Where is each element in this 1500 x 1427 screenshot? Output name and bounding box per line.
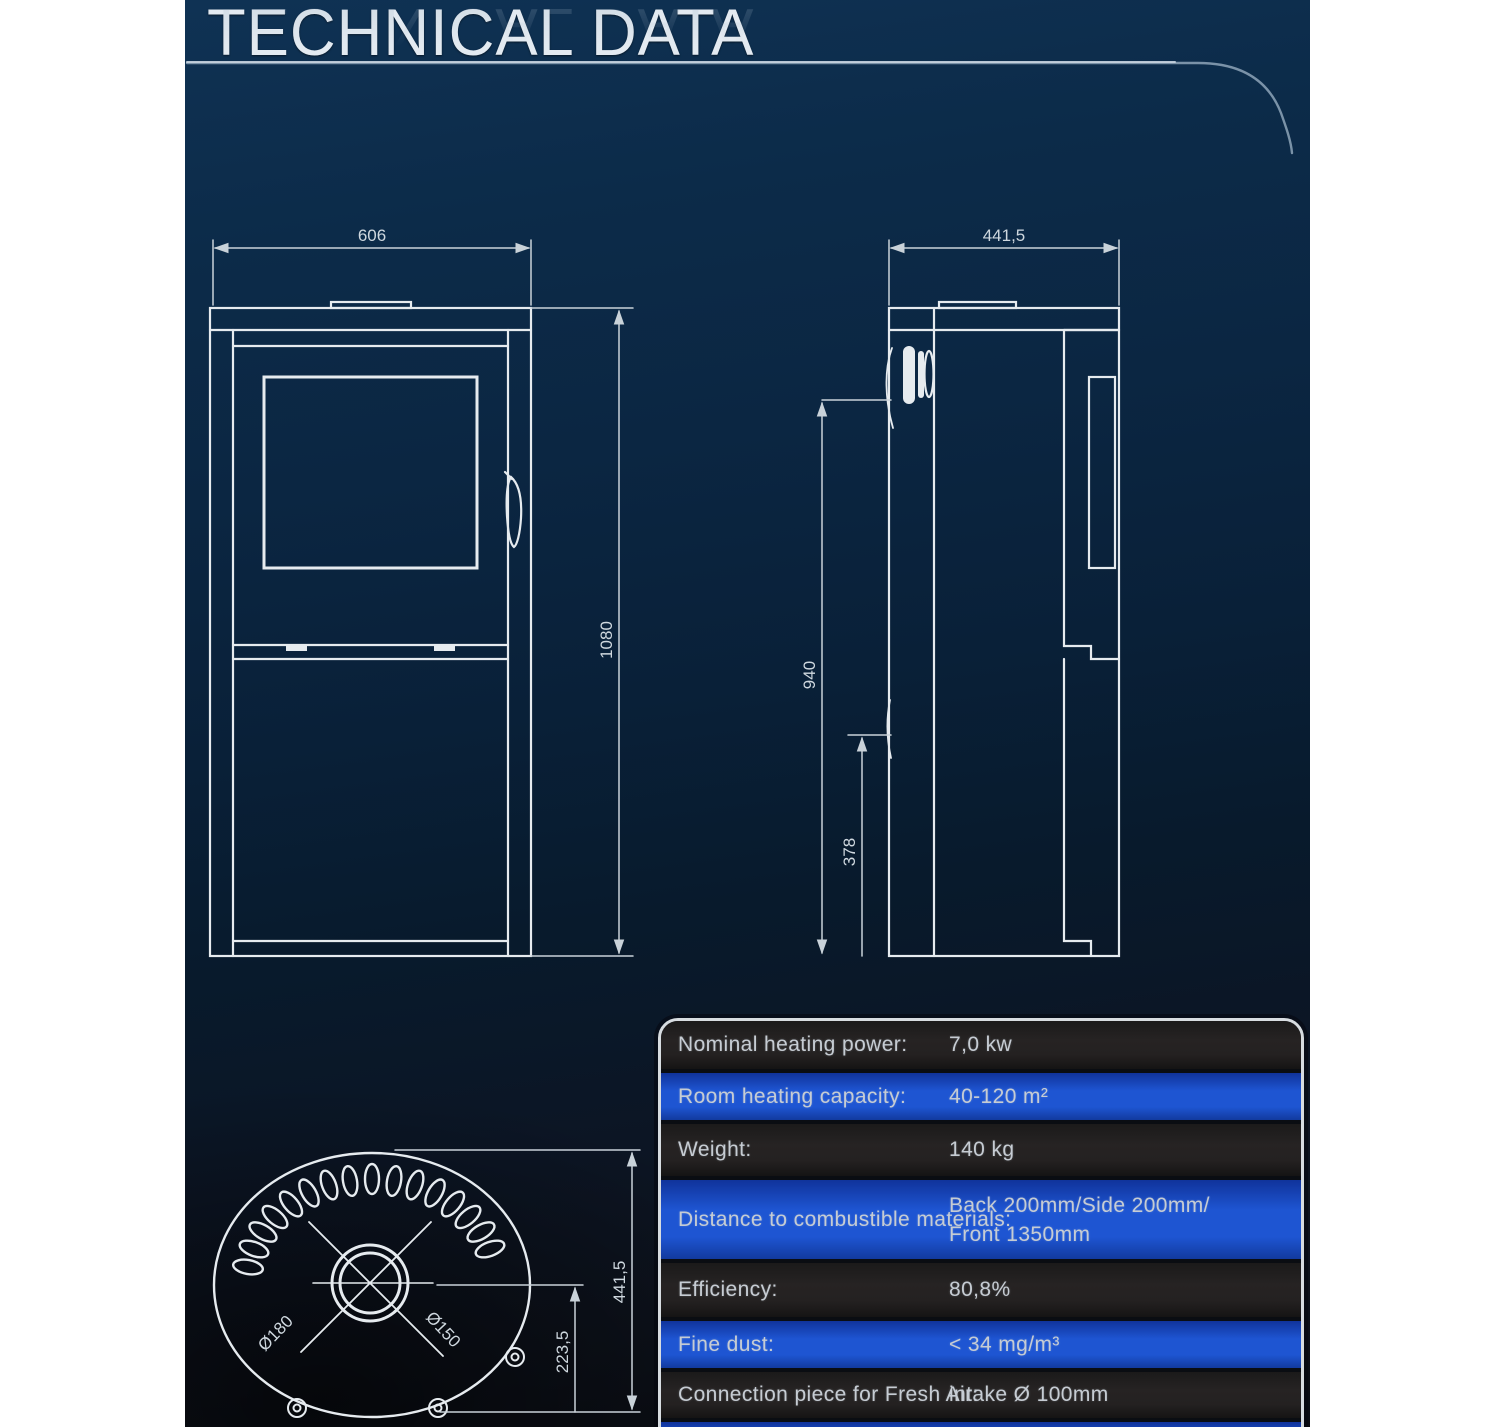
top-view-dimensions bbox=[395, 1150, 640, 1412]
table-row: Room heating capacity: 40-120 m² bbox=[661, 1069, 1301, 1120]
outer-flue-diameter-label: Ø180 bbox=[254, 1312, 297, 1355]
front-width-dimension-label: 606 bbox=[358, 226, 386, 245]
technical-data-sheet: TECHNICAL DATA TECHNICAL DATA bbox=[185, 0, 1310, 1427]
spec-value: Back 200mm/Side 200mm/ Front 1350mm bbox=[949, 1191, 1210, 1249]
table-row: Distance to combustible materials: Back … bbox=[661, 1176, 1301, 1259]
table-row: Nominal heating power: 7,0 kw bbox=[661, 1021, 1301, 1069]
table-row-partial bbox=[661, 1418, 1301, 1427]
spec-label: Fine dust: bbox=[678, 1333, 774, 1357]
top-depth-dimension-label: 441,5 bbox=[610, 1261, 629, 1304]
spec-value: intake Ø 100mm bbox=[949, 1383, 1109, 1407]
table-row: Fine dust: < 34 mg/m³ bbox=[661, 1317, 1301, 1368]
spec-label: Weight: bbox=[678, 1138, 752, 1162]
spec-value: 80,8% bbox=[949, 1278, 1011, 1302]
foot-bolts bbox=[288, 1348, 524, 1417]
spec-value: < 34 mg/m³ bbox=[949, 1333, 1060, 1357]
spec-value: 7,0 kw bbox=[949, 1033, 1012, 1057]
top-center-offset-dimension-label: 223,5 bbox=[553, 1331, 572, 1374]
side-view-drawing bbox=[886, 302, 1119, 956]
front-height-dimension-label: 1080 bbox=[597, 621, 616, 659]
table-row: Weight: 140 kg bbox=[661, 1120, 1301, 1176]
side-flue-height-dimension-label: 940 bbox=[800, 661, 819, 689]
inner-flue-diameter-label: Ø150 bbox=[422, 1308, 464, 1351]
spec-label: Room heating capacity: bbox=[678, 1085, 906, 1109]
side-lower-height-dimension-label: 378 bbox=[840, 838, 859, 866]
spec-value: 40-120 m² bbox=[949, 1085, 1048, 1109]
side-view-dimensions bbox=[822, 240, 1119, 956]
table-row: Efficiency: 80,8% bbox=[661, 1259, 1301, 1317]
front-view-dimensions bbox=[213, 240, 633, 956]
spec-label: Nominal heating power: bbox=[678, 1033, 907, 1057]
side-depth-dimension-label: 441,5 bbox=[983, 226, 1026, 245]
front-view-drawing bbox=[210, 302, 531, 956]
spec-label: Connection piece for Fresh Air: bbox=[678, 1383, 979, 1407]
spec-label: Efficiency: bbox=[678, 1278, 778, 1302]
spec-value: 140 kg bbox=[949, 1138, 1014, 1162]
spec-table: Nominal heating power: 7,0 kw Room heati… bbox=[658, 1018, 1304, 1427]
title-underline-swoosh bbox=[187, 62, 1292, 153]
spec-value-line2: Front 1350mm bbox=[949, 1220, 1210, 1249]
spec-value-line1: Back 200mm/Side 200mm/ bbox=[949, 1191, 1210, 1220]
table-row: Connection piece for Fresh Air: intake Ø… bbox=[661, 1368, 1301, 1418]
